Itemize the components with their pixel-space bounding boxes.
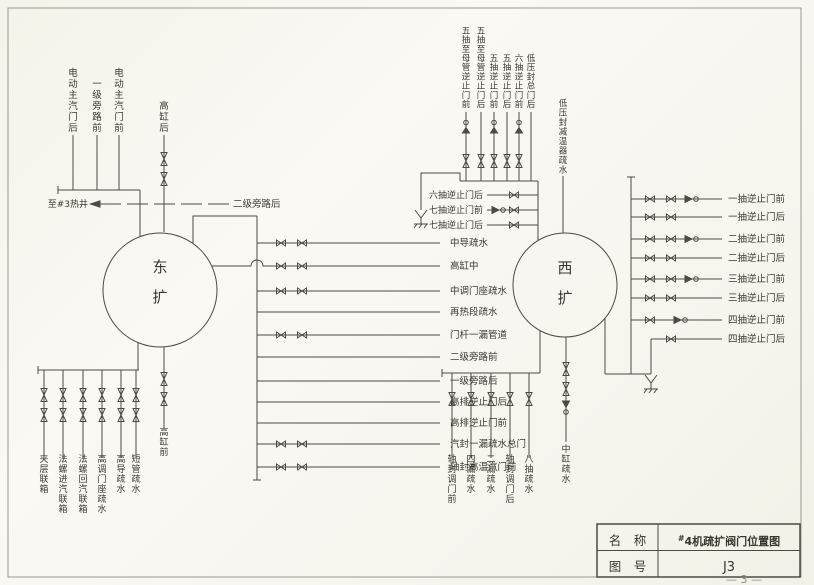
check-valve-icon [563, 401, 570, 408]
pipe-line [193, 216, 257, 243]
drain-funnel-icon [415, 210, 427, 218]
pipe-label: 四抽逆止门前 [728, 314, 785, 326]
drain-funnel-icon [424, 224, 427, 228]
pipe-label: 汽封一漏疏水总门 [450, 438, 526, 450]
drawing-page: 电动主汽门后一级旁路前电动主汽门前至#3热井二级旁路后高缸后东扩中导疏水高缸中中… [0, 0, 814, 585]
pipe-label: 七抽逆止门前 [429, 204, 483, 216]
pipe-label: 中导疏水 [450, 237, 489, 249]
to-hotwell-label: 至#3热井 [48, 198, 88, 210]
title-name-label: 名 称 [609, 533, 647, 548]
check-valve-icon [492, 207, 499, 214]
pipe-label: 三抽逆止门后 [728, 292, 786, 304]
pipe-label: 一抽逆止门后 [728, 211, 786, 223]
page-border [8, 8, 801, 577]
pipe-label: 轴封调门后 [505, 453, 514, 505]
pipe-label: 四抽逆止门后 [728, 333, 786, 345]
pipe-label: 高导疏水 [116, 453, 125, 495]
pipe-label: 高缸后 [159, 100, 169, 134]
pipe-label: 法螺进汽联箱 [58, 453, 67, 515]
pipe-label: 六抽逆止门后 [429, 189, 483, 201]
page-number: — 3 — [726, 573, 762, 585]
pipe-label: 五抽至母管逆止门前 [462, 26, 471, 110]
east-flash-tank-diagram: 电动主汽门后一级旁路前电动主汽门前至#3热井二级旁路后高缸后东扩中导疏水高缸中中… [38, 67, 526, 515]
pipe-label: 高调门座疏水 [97, 453, 106, 515]
valve-location-diagram: 电动主汽门后一级旁路前电动主汽门前至#3热井二级旁路后高缸后东扩中导疏水高缸中中… [0, 0, 814, 585]
pipe-label: 一抽逆止门前 [728, 193, 785, 205]
check-valve-icon [516, 128, 523, 134]
check-valve-icon [491, 128, 498, 134]
check-valve-icon [685, 276, 692, 283]
pipe-label: 六抽逆止门前 [515, 53, 524, 110]
pipe-label: 低压封总门后 [527, 53, 536, 110]
drain-funnel-icon [414, 224, 417, 228]
pipe-label: 二抽逆止门前 [728, 233, 785, 245]
pipe-line-hop [212, 260, 440, 266]
drain-funnel-icon [654, 389, 657, 393]
pipe-label: 五抽至母管逆止门后 [477, 26, 486, 110]
pipe-label: 再热段疏水 [450, 306, 498, 318]
pipe-label: 低压封减温器疏水 [559, 98, 568, 176]
title-no-label: 图 号 [609, 559, 647, 574]
east-tank-label: 东扩 [152, 258, 167, 306]
pipe-label: 高排逆止门前 [450, 417, 507, 429]
drain-funnel-icon [644, 389, 647, 393]
pipe-label: 中缸疏水 [561, 443, 570, 485]
pipe-label: 二抽逆止门后 [728, 252, 786, 264]
pipe-label: 门杆一漏管道 [450, 329, 508, 341]
title-block: 名 称图 号#4机疏扩阀门位置图J3— 3 — [597, 524, 800, 585]
west-tank-circle [513, 233, 617, 337]
pipe-label: 八抽疏水 [524, 455, 533, 495]
pipe-label: 中调门座疏水 [450, 285, 508, 297]
check-valve-icon [463, 128, 470, 134]
check-valve-icon [685, 236, 692, 243]
check-valve-icon [685, 196, 692, 203]
pipe-label: 法螺回汽联箱 [78, 453, 87, 515]
pipe-label: 一级旁路前 [92, 79, 102, 134]
bypass2-after-label: 二级旁路后 [233, 198, 281, 210]
drain-funnel-icon [649, 389, 652, 393]
page-frame [8, 8, 801, 577]
drain-funnel-icon [419, 224, 422, 228]
pipe-label: 高缸中 [450, 260, 479, 272]
pipe-label: 二漏疏水 [486, 455, 495, 495]
check-valve-icon [674, 317, 681, 324]
pipe-label: 五抽逆止门前 [490, 54, 499, 110]
flow-arrow-icon [91, 201, 101, 207]
pipe-label: 四漏疏水 [466, 455, 475, 495]
pipe-label: 电动主汽门前 [114, 67, 124, 134]
pipe-label: 二级旁路前 [450, 351, 498, 363]
pipe-label: 七抽逆止门后 [429, 219, 483, 231]
pipe-label: 高缸前 [159, 426, 168, 458]
drain-funnel-icon [645, 375, 657, 383]
pipe-label: 轴封调门前 [447, 453, 456, 505]
pipe-label: 夹层联箱 [39, 453, 48, 495]
pipe-label: 高排逆止门后 [450, 396, 508, 408]
pipe-label: 电动主汽门后 [68, 67, 78, 134]
pipe-label: 短管疏水 [131, 453, 140, 495]
drawing-name: #4机疏扩阀门位置图 [678, 534, 780, 548]
pipe-label: 三抽逆止门前 [728, 273, 785, 285]
pipe-label: 五抽逆止门后 [503, 54, 512, 110]
west-tank-label: 西扩 [557, 259, 572, 307]
